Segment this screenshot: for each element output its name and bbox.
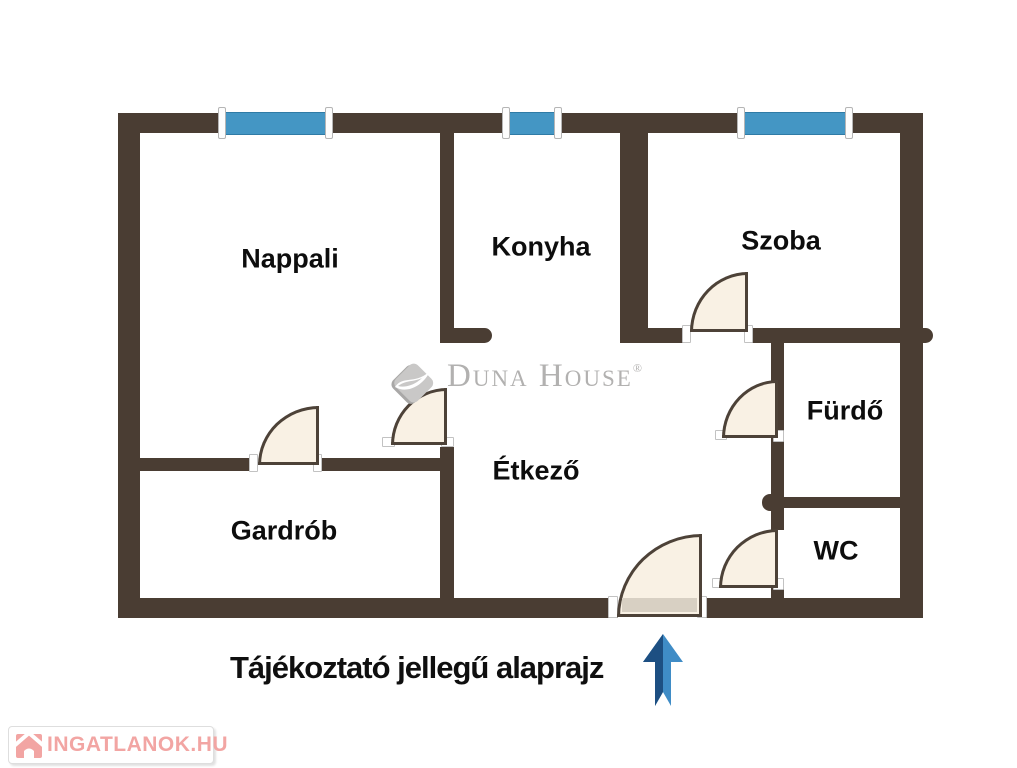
door-szoba bbox=[690, 272, 748, 332]
room-label-furdo: Fürdő bbox=[807, 396, 883, 427]
wall-furdo-wc-divider bbox=[783, 497, 900, 508]
wall-konyha-stub bbox=[452, 328, 492, 343]
window-glass bbox=[744, 112, 846, 135]
window-glass bbox=[509, 112, 555, 135]
watermark-brand-text: Duna House bbox=[447, 358, 633, 394]
wall-gardrob-segment bbox=[118, 458, 255, 471]
door-gardrob bbox=[258, 406, 319, 465]
room-label-etkezo: Étkező bbox=[492, 456, 579, 487]
room-label-szoba: Szoba bbox=[741, 226, 821, 257]
wall-top-segment bbox=[562, 113, 737, 133]
window-glass bbox=[225, 112, 326, 135]
wall-junction-bump bbox=[762, 494, 785, 511]
wall-center-upper bbox=[440, 133, 454, 343]
window-frame-cap bbox=[502, 107, 510, 139]
north-arrow-icon bbox=[641, 632, 685, 713]
wall-bottom-segment bbox=[118, 598, 618, 618]
wall-top-segment bbox=[333, 113, 502, 133]
entrance-threshold bbox=[622, 598, 697, 612]
floorplan-canvas: Duna House® Nappali Konyha Szoba Fürdő W… bbox=[0, 0, 1017, 768]
room-label-konyha: Konyha bbox=[491, 232, 590, 263]
window-frame-cap bbox=[554, 107, 562, 139]
window-frame-cap bbox=[737, 107, 745, 139]
logo-text: INGATLANOK.HU bbox=[47, 733, 228, 757]
dunahouse-watermark: Duna House® bbox=[447, 360, 642, 393]
wall-right bbox=[900, 133, 923, 618]
wall-left bbox=[118, 113, 140, 618]
window-frame-cap bbox=[325, 107, 333, 139]
room-label-nappali: Nappali bbox=[241, 244, 339, 275]
window-frame-cap bbox=[845, 107, 853, 139]
door-furdo bbox=[722, 380, 778, 438]
wall-konyha-szoba bbox=[620, 133, 648, 328]
room-label-gardrob: Gardrób bbox=[231, 516, 338, 547]
dunahouse-diamond-icon bbox=[384, 354, 442, 417]
caption-text: Tájékoztató jellegű alaprajz bbox=[230, 650, 603, 686]
window-frame-cap bbox=[218, 107, 226, 139]
door-entrance bbox=[617, 534, 702, 617]
wall-szoba-bottom-segment bbox=[620, 328, 688, 343]
door-wc bbox=[719, 529, 778, 588]
house-icon bbox=[15, 731, 43, 764]
wall-gardrob-segment bbox=[318, 458, 453, 471]
room-label-wc: WC bbox=[814, 536, 859, 567]
door-jamb bbox=[249, 454, 258, 472]
wall-bottom-segment bbox=[700, 598, 923, 618]
wall-top-segment bbox=[853, 113, 923, 133]
registered-mark: ® bbox=[633, 361, 642, 375]
ingatlanok-logo: INGATLANOK.HU bbox=[8, 726, 214, 764]
